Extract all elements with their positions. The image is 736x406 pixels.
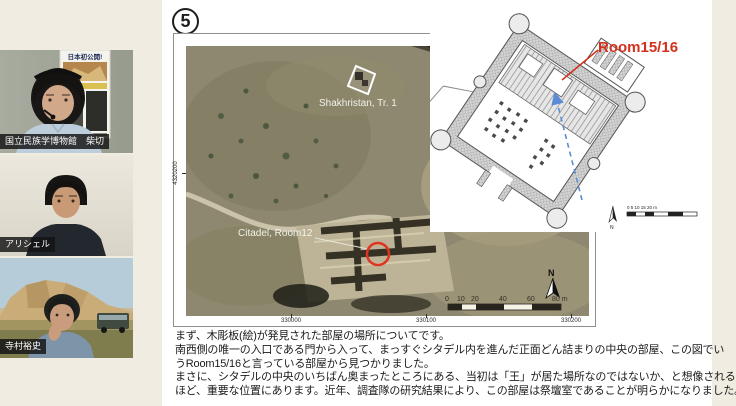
slide-body-text: まず、木彫板(絵)が発見された部屋の場所についてです。 南西側の唯一の入口である… — [175, 330, 709, 399]
coord-tick — [182, 173, 186, 174]
svg-text:N: N — [548, 268, 555, 278]
svg-text:0 5 10 15 20 m: 0 5 10 15 20 m — [627, 205, 657, 210]
participant-video-teramura[interactable]: 寺村裕史 — [0, 258, 133, 358]
coord-label-x3: 330200 — [561, 318, 581, 324]
body-line-1: まず、木彫板(絵)が発見された部屋の場所についてです。 — [175, 330, 709, 344]
participant3-nametag: 寺村裕史 — [0, 339, 46, 354]
body-line-2: 南西側の唯一の入口である門から入って、まっすぐシタデル内を進んだ正面どん詰まりの… — [175, 344, 709, 358]
participant2-nametag: アリシェル — [0, 237, 55, 252]
shakhristan-label: Shakhristan, Tr. 1 — [319, 98, 397, 109]
coord-label-y1: 4320200 — [173, 146, 181, 200]
svg-text:N: N — [610, 225, 614, 231]
participant-video-alisher[interactable]: アリシェル — [0, 155, 133, 256]
room-15-16-label: Room15/16 — [598, 39, 678, 56]
participant-video-shibakiri[interactable]: 日本初公開! 国立民族学博物館 柴 — [0, 50, 133, 153]
citadel-plan: Room15/16 N 0 5 10 15 20 m — [430, 0, 712, 232]
fortress-plan-rotated — [430, 0, 662, 232]
video-conference-window: 日本初公開! 国立民族学博物館 柴 — [0, 0, 736, 406]
plan-scale-bar: 0 5 10 15 20 m — [627, 205, 697, 216]
plan-north-arrow-icon: N — [609, 206, 617, 231]
citadel-label: Citadel, Room12 — [238, 228, 313, 239]
shared-slide: 5 — [162, 0, 712, 406]
svg-text:40: 40 — [499, 296, 507, 303]
svg-text:0: 0 — [445, 296, 449, 303]
coord-label-x2: 330100 — [416, 318, 436, 324]
coord-label-x1: 330000 — [281, 318, 301, 324]
participant1-nametag: 国立民族学博物館 柴切 — [0, 134, 109, 149]
body-line-5: ほど、重要な位置にあります。近年、調査隊の研究結果により、この部屋は祭壇室である… — [175, 385, 709, 399]
poster-title: 日本初公開! — [68, 52, 103, 61]
svg-text:20: 20 — [471, 296, 479, 303]
body-line-4: まさに、シタデルの中央のいちばん奥まったところにある、当初は「王」が居た場所なの… — [175, 371, 709, 385]
svg-text:60: 60 — [527, 296, 535, 303]
body-line-3: うRoom15/16と言っている部屋から見つかりました。 — [175, 358, 709, 372]
svg-text:80 m: 80 m — [552, 296, 568, 303]
svg-text:10: 10 — [457, 296, 465, 303]
citadel-plan-inset: Room15/16 N 0 5 10 15 20 m — [430, 0, 712, 232]
slide-number-badge: 5 — [172, 8, 199, 35]
